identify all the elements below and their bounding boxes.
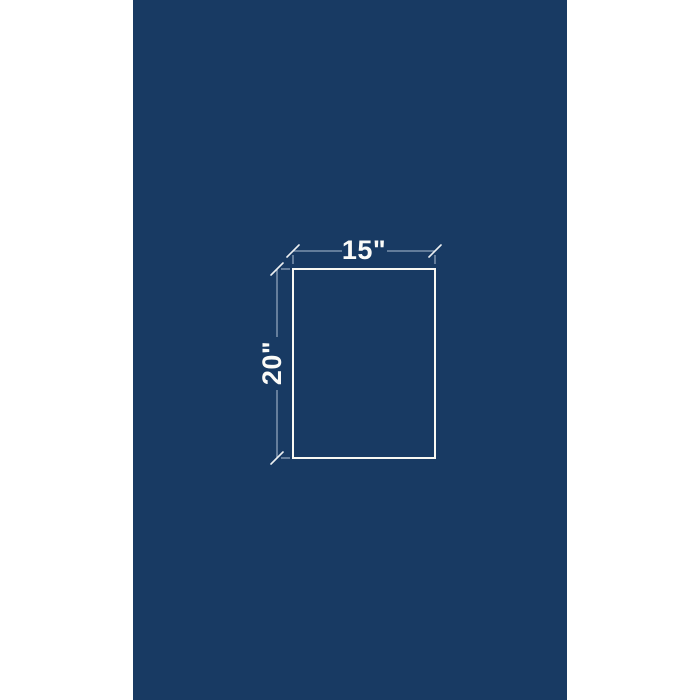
page: 15" 20"	[0, 0, 700, 700]
height-dimension-label: 20"	[257, 341, 287, 385]
dimension-tick-marks	[271, 245, 441, 464]
panel-outline-rectangle	[293, 269, 435, 458]
width-dimension-label: 15"	[342, 235, 386, 265]
dimension-diagram: 15" 20"	[0, 0, 700, 700]
